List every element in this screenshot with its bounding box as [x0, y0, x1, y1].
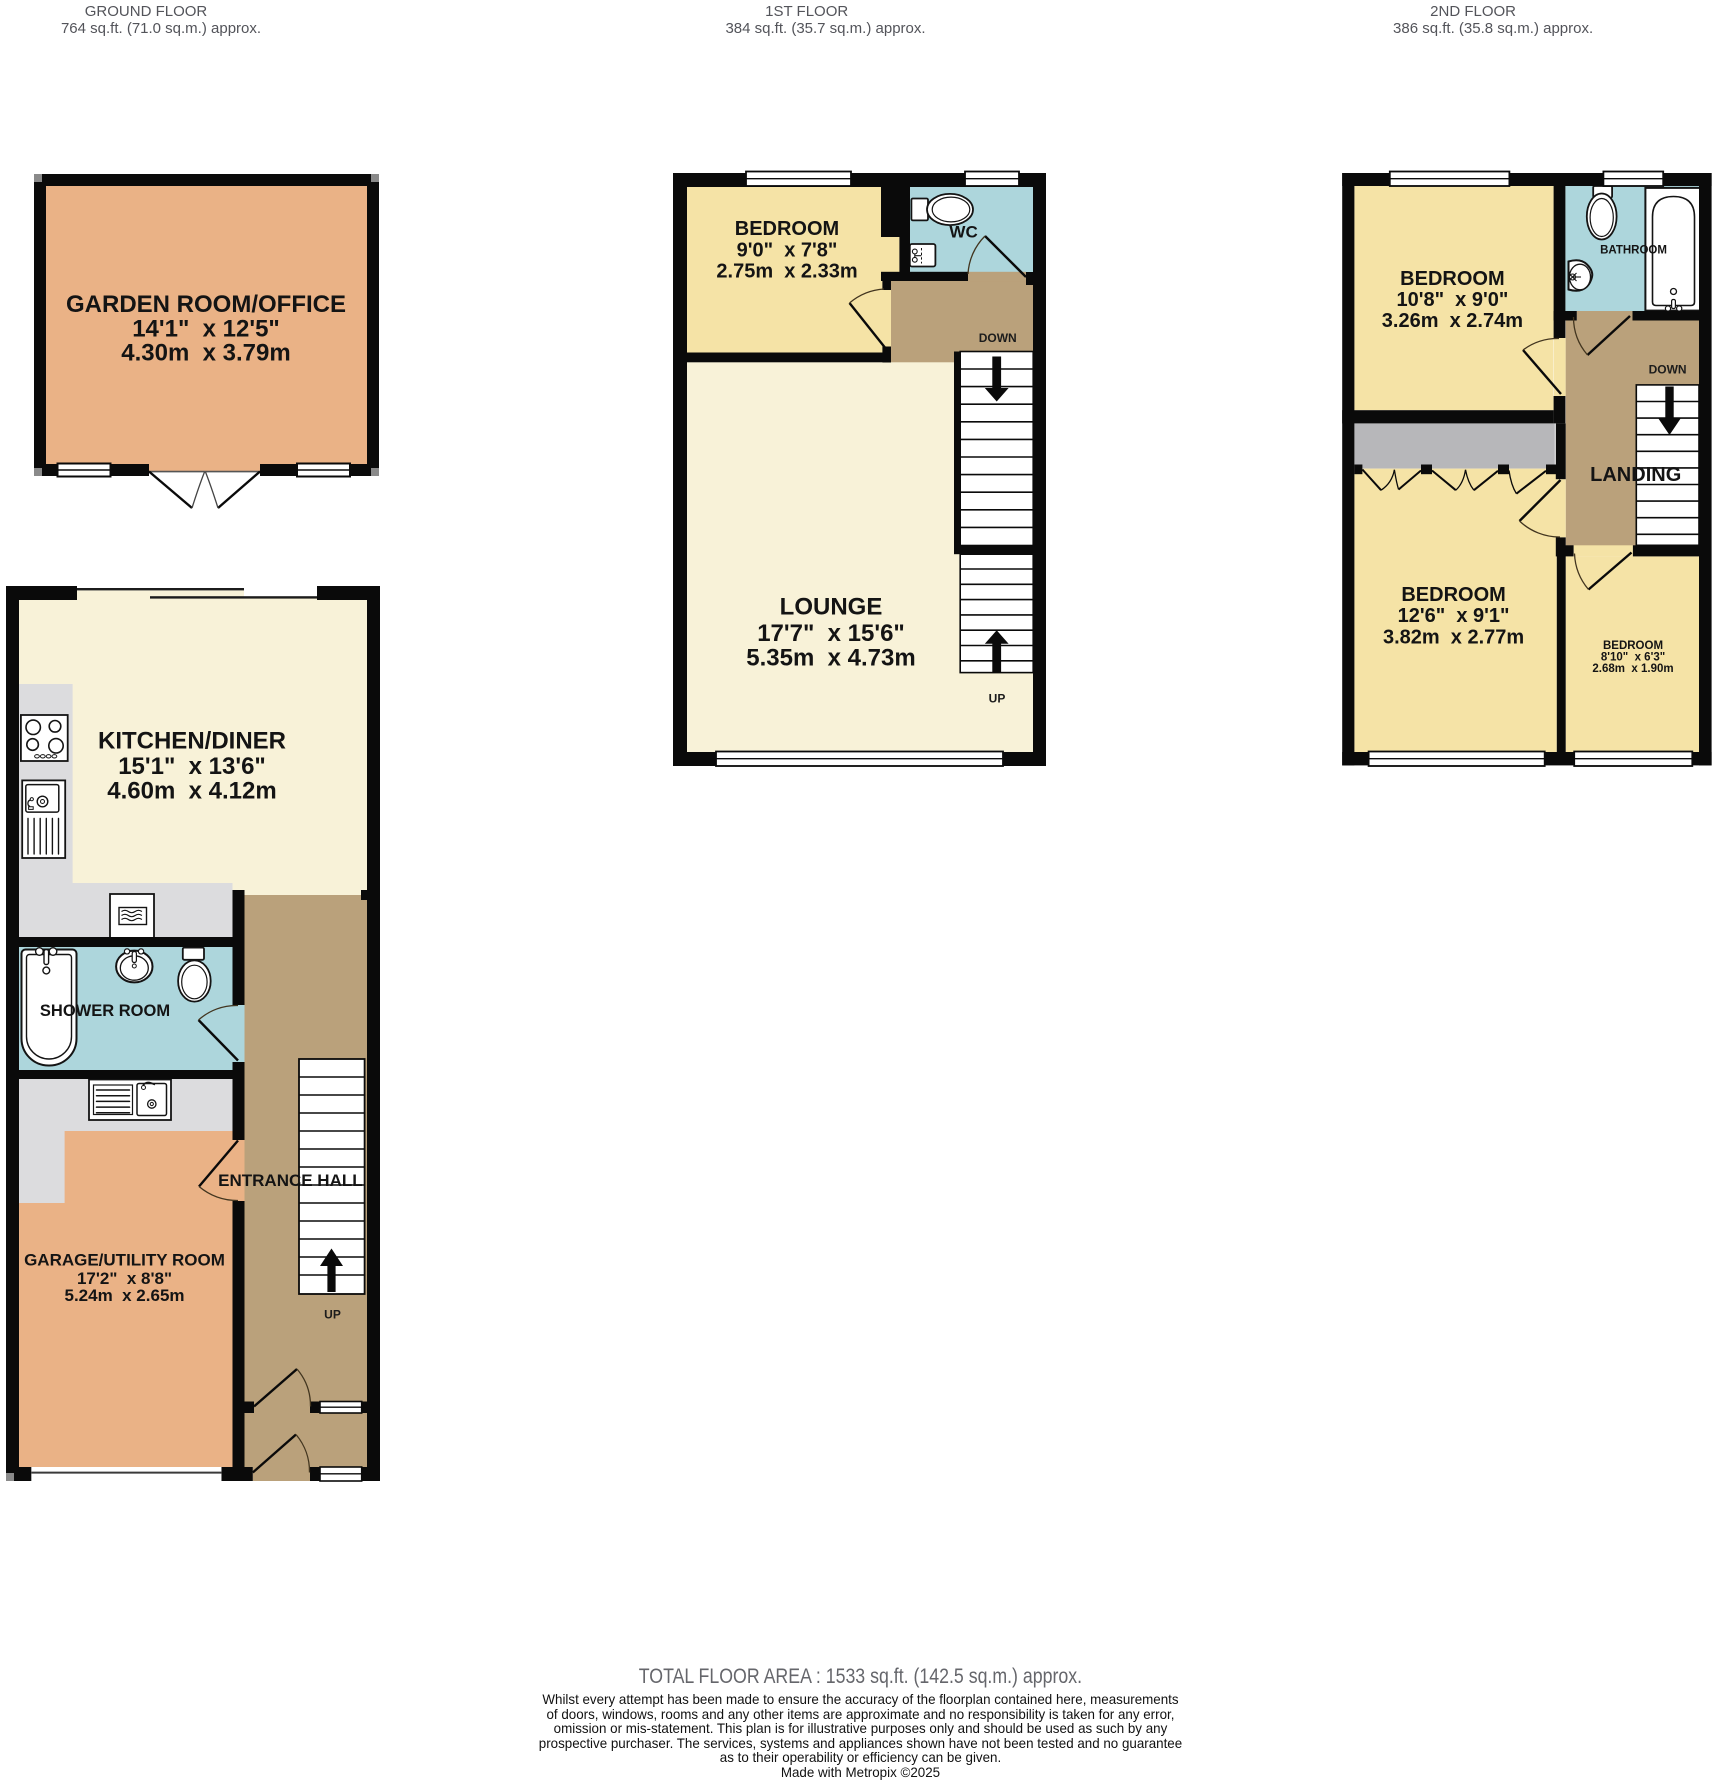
- svg-text:3.82m x 2.77m: 3.82m x 2.77m: [1383, 627, 1524, 649]
- svg-text:SHOWER ROOM: SHOWER ROOM: [40, 1002, 170, 1020]
- svg-text:12'6" x 9'1": 12'6" x 9'1": [1398, 605, 1510, 627]
- svg-text:14'1" x 12'5": 14'1" x 12'5": [132, 316, 280, 343]
- svg-text:BEDROOM: BEDROOM: [735, 218, 839, 240]
- svg-text:9'0" x 7'8": 9'0" x 7'8": [737, 240, 838, 262]
- svg-text:5.35m x 4.73m: 5.35m x 4.73m: [746, 645, 915, 672]
- svg-text:17'7" x 15'6": 17'7" x 15'6": [757, 620, 905, 647]
- svg-text:KITCHEN/DINER: KITCHEN/DINER: [98, 728, 286, 755]
- svg-text:BATHROOM: BATHROOM: [1600, 245, 1667, 257]
- svg-text:LOUNGE: LOUNGE: [780, 594, 883, 621]
- svg-text:8'10" x 6'3": 8'10" x 6'3": [1601, 652, 1665, 664]
- svg-text:BEDROOM: BEDROOM: [1401, 584, 1505, 606]
- svg-text:BEDROOM: BEDROOM: [1603, 640, 1663, 652]
- svg-text:DOWN: DOWN: [1649, 362, 1687, 376]
- svg-text:UP: UP: [324, 1308, 341, 1322]
- svg-text:LANDING: LANDING: [1590, 464, 1681, 486]
- svg-text:4.60m x 4.12m: 4.60m x 4.12m: [107, 778, 276, 805]
- svg-text:4.30m x 3.79m: 4.30m x 3.79m: [121, 340, 290, 367]
- svg-text:GARDEN ROOM/OFFICE: GARDEN ROOM/OFFICE: [66, 291, 346, 318]
- svg-text:2.75m x 2.33m: 2.75m x 2.33m: [716, 261, 857, 283]
- svg-text:5.24m x 2.65m: 5.24m x 2.65m: [64, 1286, 184, 1305]
- svg-text:3.26m x 2.74m: 3.26m x 2.74m: [1382, 310, 1523, 332]
- svg-text:ENTRANCE HALL: ENTRANCE HALL: [218, 1171, 363, 1190]
- svg-text:15'1" x 13'6": 15'1" x 13'6": [118, 753, 266, 780]
- svg-text:BEDROOM: BEDROOM: [1400, 268, 1504, 290]
- svg-text:GARAGE/UTILITY ROOM: GARAGE/UTILITY ROOM: [24, 1250, 225, 1269]
- svg-text:WC: WC: [949, 223, 977, 242]
- svg-text:10'8" x 9'0": 10'8" x 9'0": [1396, 289, 1508, 311]
- svg-text:DOWN: DOWN: [979, 331, 1017, 345]
- svg-text:2.68m x 1.90m: 2.68m x 1.90m: [1592, 663, 1673, 675]
- svg-text:UP: UP: [989, 692, 1006, 706]
